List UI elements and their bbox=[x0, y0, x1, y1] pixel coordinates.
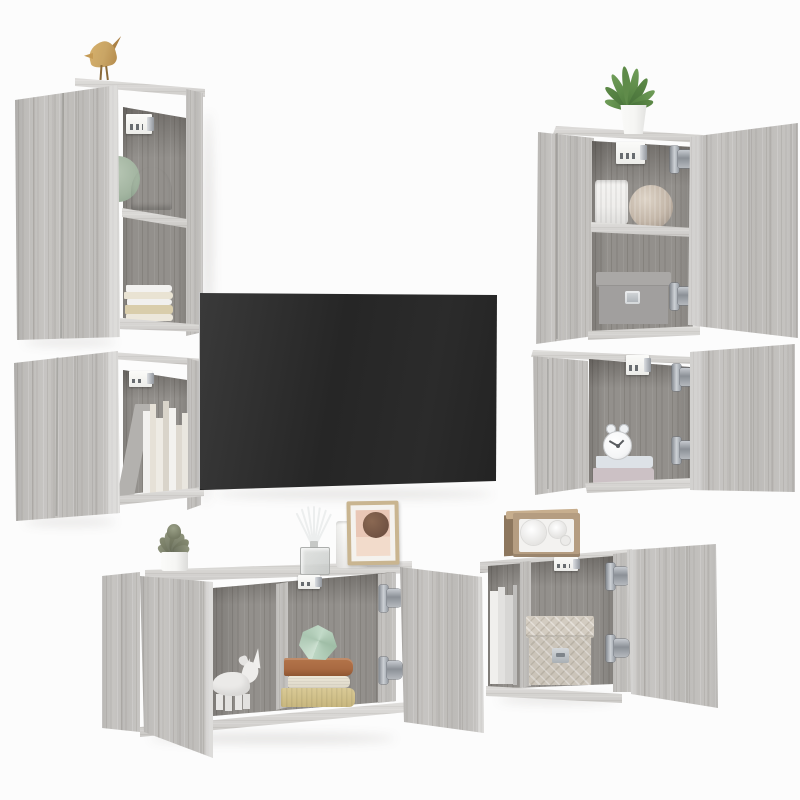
fabric-box-handle-slot bbox=[556, 653, 565, 657]
book bbox=[169, 408, 176, 494]
fan-vase bbox=[131, 167, 172, 210]
door-hinge bbox=[606, 563, 630, 590]
potted-plant bbox=[598, 50, 662, 135]
book-stack bbox=[281, 654, 355, 707]
cabinet-side-panel bbox=[536, 127, 594, 344]
book bbox=[156, 418, 163, 495]
file-board bbox=[490, 591, 498, 684]
bench-door-open bbox=[625, 542, 718, 710]
book-row bbox=[143, 398, 188, 498]
wall-shadow bbox=[215, 489, 493, 499]
book bbox=[143, 411, 150, 496]
rhino-leg bbox=[243, 694, 250, 709]
bench-door-open bbox=[139, 573, 215, 761]
door-hinge bbox=[379, 657, 403, 684]
book bbox=[182, 413, 188, 492]
door-hinge bbox=[606, 635, 630, 662]
box-lid bbox=[596, 272, 671, 287]
alarm-clock bbox=[602, 424, 633, 461]
succulent bbox=[152, 518, 196, 572]
rhino-leg bbox=[235, 695, 242, 710]
book bbox=[124, 292, 173, 299]
ribbed-vase bbox=[595, 180, 628, 224]
wall-mount-bracket bbox=[616, 142, 645, 164]
fabric-box-lid bbox=[526, 616, 594, 638]
cabinet-door-open bbox=[14, 84, 121, 341]
storage-box bbox=[596, 272, 671, 325]
radio-knob bbox=[561, 536, 570, 545]
rhino-leg bbox=[216, 694, 223, 710]
rhino-leg bbox=[225, 695, 232, 711]
book bbox=[284, 658, 353, 676]
reed-diffuser bbox=[294, 503, 338, 573]
wall-mount-bracket bbox=[626, 355, 649, 375]
book bbox=[126, 285, 172, 292]
wall-mount-bracket bbox=[126, 114, 152, 134]
radio-speaker bbox=[521, 520, 546, 545]
cabinet-door-open bbox=[687, 122, 798, 340]
panel-seam bbox=[556, 133, 558, 339]
fabric-storage-box bbox=[526, 614, 594, 686]
book bbox=[288, 676, 350, 688]
tv-screen bbox=[200, 291, 499, 491]
clock-center bbox=[616, 444, 620, 448]
bench-door-open bbox=[398, 564, 488, 735]
bracket-vent bbox=[629, 365, 641, 370]
cabinet-side-panel bbox=[533, 353, 590, 495]
bird-leg bbox=[105, 66, 109, 80]
plant-pot bbox=[161, 552, 188, 571]
picture-frame bbox=[346, 501, 399, 566]
file-board bbox=[513, 585, 517, 685]
panel-seam bbox=[547, 359, 549, 489]
door-hinge bbox=[379, 585, 403, 612]
bracket-clip bbox=[640, 145, 647, 160]
bracket-clip bbox=[573, 559, 580, 569]
book-stack bbox=[124, 285, 174, 321]
bracket-vent bbox=[620, 153, 635, 159]
file-board bbox=[498, 587, 505, 684]
plant-pot bbox=[618, 105, 649, 134]
bench-side-panel bbox=[102, 572, 140, 735]
bracket-vent bbox=[132, 379, 144, 383]
bracket-vent bbox=[301, 582, 312, 586]
file-board bbox=[505, 595, 513, 684]
bird-figurine bbox=[84, 33, 126, 85]
wall-mount-bracket bbox=[298, 575, 320, 589]
rhino-figurine bbox=[208, 646, 264, 712]
cabinet-door-open bbox=[689, 342, 796, 495]
wall-mount-bracket bbox=[554, 557, 578, 571]
rhino-body bbox=[212, 672, 250, 696]
bracket-clip bbox=[644, 358, 651, 372]
book bbox=[125, 305, 173, 314]
bracket-vent bbox=[557, 564, 569, 568]
file-boards bbox=[490, 582, 517, 686]
sphere-vase bbox=[629, 185, 673, 229]
bird-leg bbox=[99, 65, 102, 80]
diffuser-bottle bbox=[300, 547, 330, 575]
wall-mount-bracket bbox=[129, 371, 152, 387]
succulent-bud bbox=[167, 524, 181, 539]
cabinet-door-open bbox=[13, 350, 120, 522]
bracket-clip bbox=[315, 577, 322, 587]
radio bbox=[504, 510, 580, 557]
bracket-clip bbox=[147, 373, 154, 384]
box-handle bbox=[625, 291, 640, 304]
book bbox=[281, 688, 355, 707]
bracket-clip bbox=[147, 117, 154, 131]
product-photo-tv-wall-set bbox=[0, 0, 800, 800]
bracket-vent bbox=[130, 124, 144, 129]
